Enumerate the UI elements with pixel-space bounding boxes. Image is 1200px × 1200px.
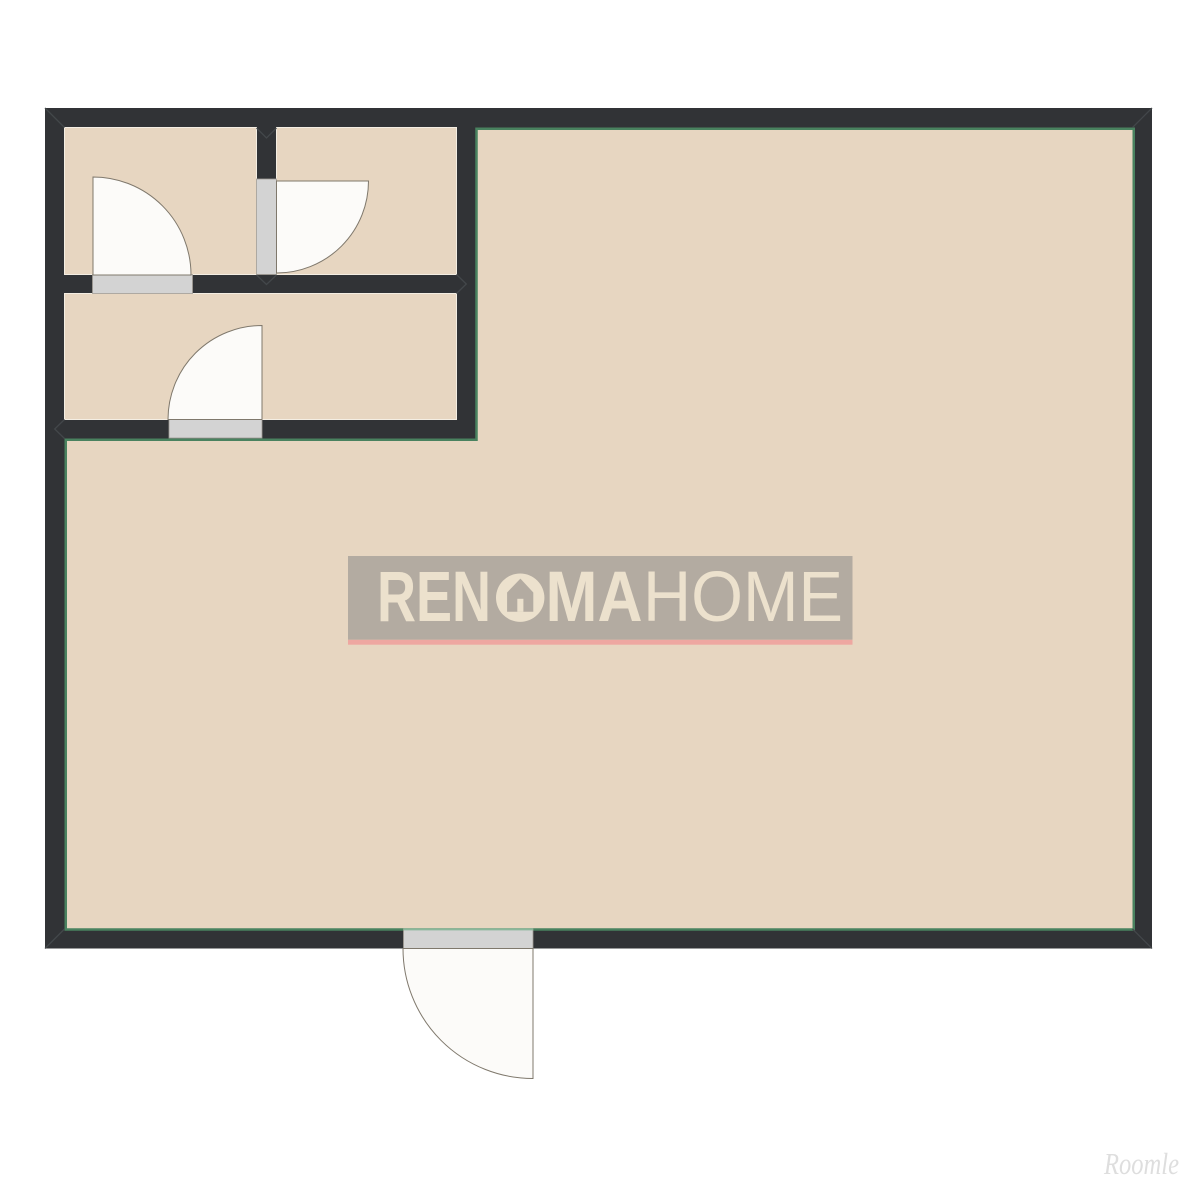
svg-text:Roomle: Roomle: [1103, 1146, 1179, 1181]
svg-text:HOME: HOME: [643, 558, 843, 637]
svg-text:MA: MA: [546, 558, 643, 637]
svg-text:REN: REN: [377, 558, 491, 637]
